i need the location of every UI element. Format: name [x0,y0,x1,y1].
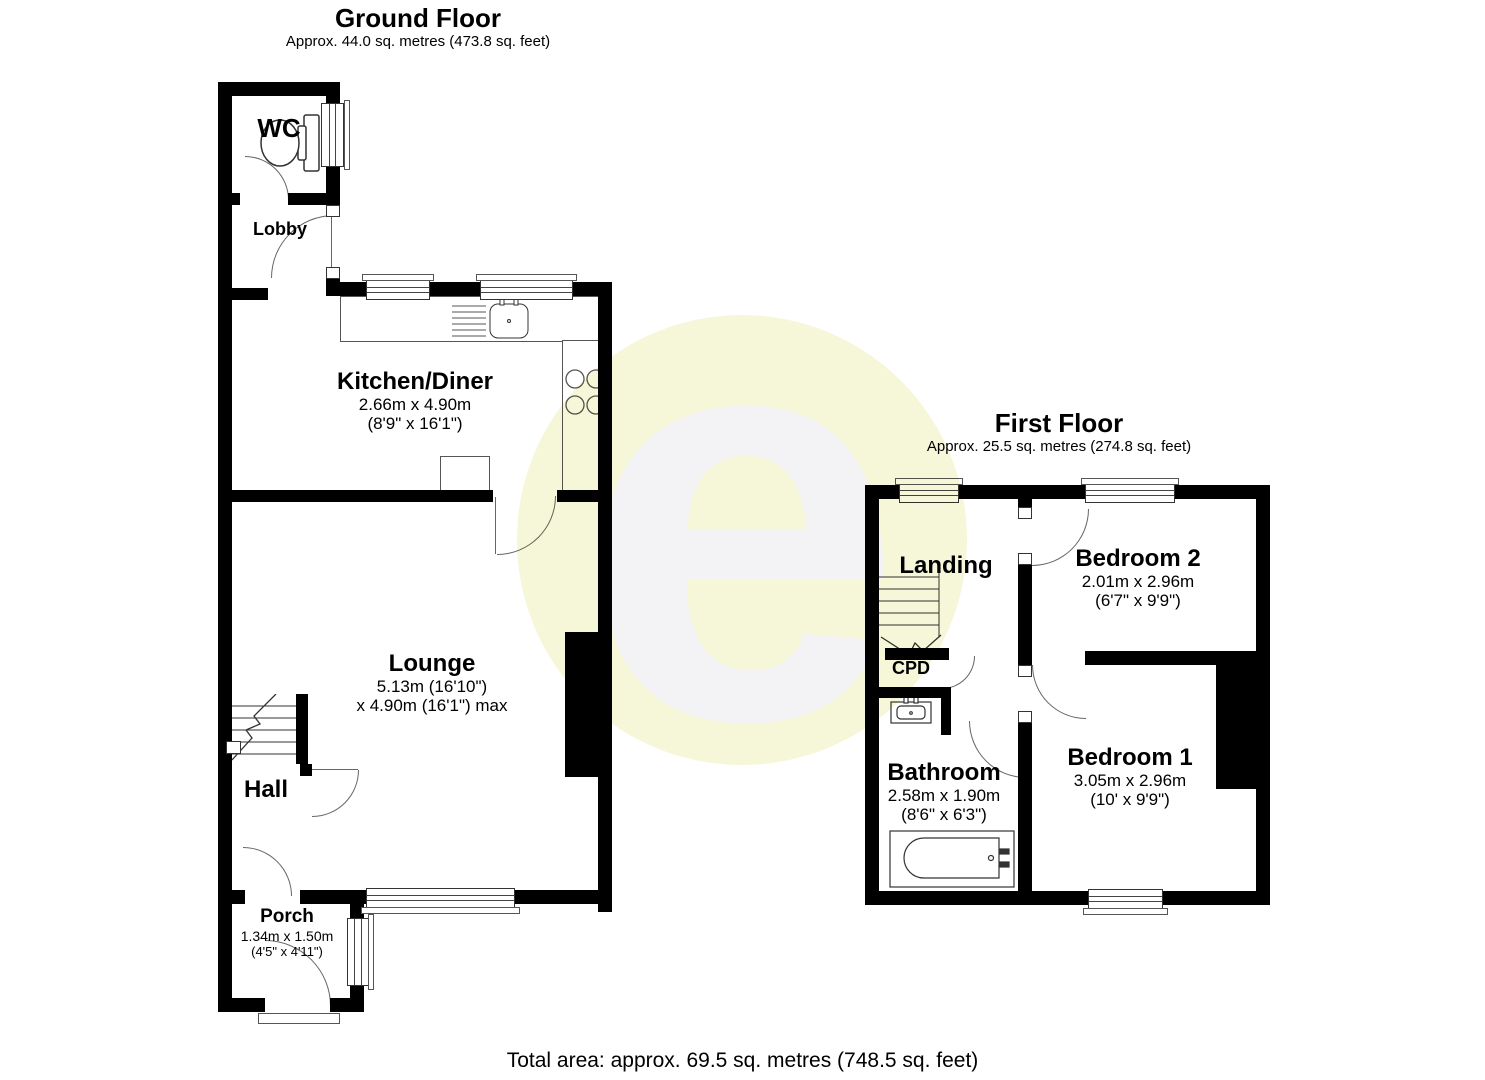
porch-window [347,918,369,986]
room-name: CPD [883,658,939,678]
wall [218,82,340,96]
room-dim-metric: 3.05m x 2.96m [1030,771,1230,790]
wall [598,296,612,912]
ground-floor-header: Ground Floor Approx. 44.0 sq. metres (47… [218,3,618,51]
room-name: Lounge [332,650,532,677]
floorplan-canvas: Ground Floor Approx. 44.0 sq. metres (47… [0,0,1485,1080]
wall [865,485,879,905]
kitchen-window-left [366,280,430,300]
bedroom2-window [1085,483,1175,503]
landing-window [899,483,959,503]
wall [1256,485,1270,905]
hall-lounge-door-arc [312,770,359,817]
door-jamb [1018,665,1032,677]
door-jamb [1018,711,1032,723]
window-sill [368,914,374,990]
door-jamb [1018,507,1032,519]
ground-floor-subtitle: Approx. 44.0 sq. metres (473.8 sq. feet) [218,33,618,51]
watermark-letter: e [581,227,904,807]
chimney-breast [565,632,612,777]
room-label-landing: Landing [856,552,1036,579]
total-area-text: Total area: approx. 69.5 sq. metres (748… [0,1049,1485,1073]
ground-stairs-icon [232,694,296,764]
room-name: WC [229,114,329,142]
lounge-window [366,888,515,908]
room-label-lobby: Lobby [230,219,330,239]
room-name: Bathroom [844,759,1044,786]
room-label-bedroom2: Bedroom 2 2.01m x 2.96m (6'7" x 9'9") [1038,545,1238,610]
wall [218,998,265,1012]
wall [1018,651,1032,665]
room-name: Bedroom 2 [1038,545,1238,572]
room-label-kitchen-diner: Kitchen/Diner 2.66m x 4.90m (8'9" x 16'1… [315,368,515,433]
room-label-lounge: Lounge 5.13m (16'10") x 4.90m (16'1") ma… [332,650,532,715]
cpd-wall [879,687,943,698]
room-dim-metric: 5.13m (16'10") [332,677,532,696]
first-floor-header: First Floor Approx. 25.5 sq. metres (274… [859,408,1259,456]
room-dim-imperial: x 4.90m (16'1") max [332,696,532,715]
room-dim-imperial: (4'5" x 4'11") [232,944,342,959]
kitchen-unit [440,456,490,494]
room-dim-metric: 1.34m x 1.50m [232,928,342,944]
room-name: Lobby [230,219,330,239]
room-dim-imperial: (8'9" x 16'1") [315,414,515,433]
room-name: Porch [232,906,342,928]
window-sill [476,274,577,281]
hall-porch-door-arc [243,847,292,896]
first-floor-title: First Floor [859,408,1259,438]
room-name: Hall [216,776,316,803]
wall [865,891,1270,905]
room-label-wc: WC [229,114,329,142]
kitchen-sink-icon [450,294,532,344]
room-dim-metric: 2.58m x 1.90m [844,786,1044,805]
wall [941,687,951,735]
door-jamb [326,205,340,217]
room-label-bathroom: Bathroom 2.58m x 1.90m (8'6" x 6'3") [844,759,1044,824]
wall [300,764,312,776]
bathroom-sink-icon [890,694,932,724]
stair-newel [226,741,241,754]
room-dim-metric: 2.01m x 2.96m [1038,572,1238,591]
room-name: Bedroom 1 [1030,744,1230,771]
wall [232,193,240,205]
window-sill [344,100,350,170]
wall [232,890,245,904]
bedroom1-window [1088,889,1163,909]
kitchen-window-right [480,280,573,300]
room-label-cpd: CPD [883,658,939,678]
room-label-bedroom1: Bedroom 1 3.05m x 2.96m (10' x 9'9") [1030,744,1230,809]
kitchen-lounge-door-arc [497,496,556,555]
stair-wall [296,694,308,764]
first-floor-subtitle: Approx. 25.5 sq. metres (274.8 sq. feet) [859,438,1259,456]
wall [218,288,268,300]
wall [1018,499,1032,507]
door-leaf [312,769,358,770]
room-dim-metric: 2.66m x 4.90m [315,395,515,414]
door-jamb [326,267,340,279]
room-name: Landing [856,552,1036,579]
door-leaf [495,497,496,554]
room-dim-imperial: (6'7" x 9'9") [1038,591,1238,610]
wall [288,193,340,205]
room-label-porch: Porch 1.34m x 1.50m (4'5" x 4'11") [232,906,342,959]
window-sill [362,274,434,281]
room-label-hall: Hall [216,776,316,803]
window-sill [895,478,963,485]
room-dim-imperial: (8'6" x 6'3") [844,805,1044,824]
wall [330,998,364,1012]
cpd-door-arc [942,656,975,689]
window-sill [1081,478,1179,485]
bedroom1-door-arc [1032,665,1086,719]
window-sill [1083,908,1168,915]
room-name: Kitchen/Diner [315,368,515,395]
window-sill [361,907,520,914]
bath-icon [889,829,1015,889]
wall [557,490,612,502]
porch-door-threshold [258,1013,340,1024]
wall [232,490,493,502]
ground-floor-title: Ground Floor [218,3,618,33]
room-dim-imperial: (10' x 9'9") [1030,790,1230,809]
